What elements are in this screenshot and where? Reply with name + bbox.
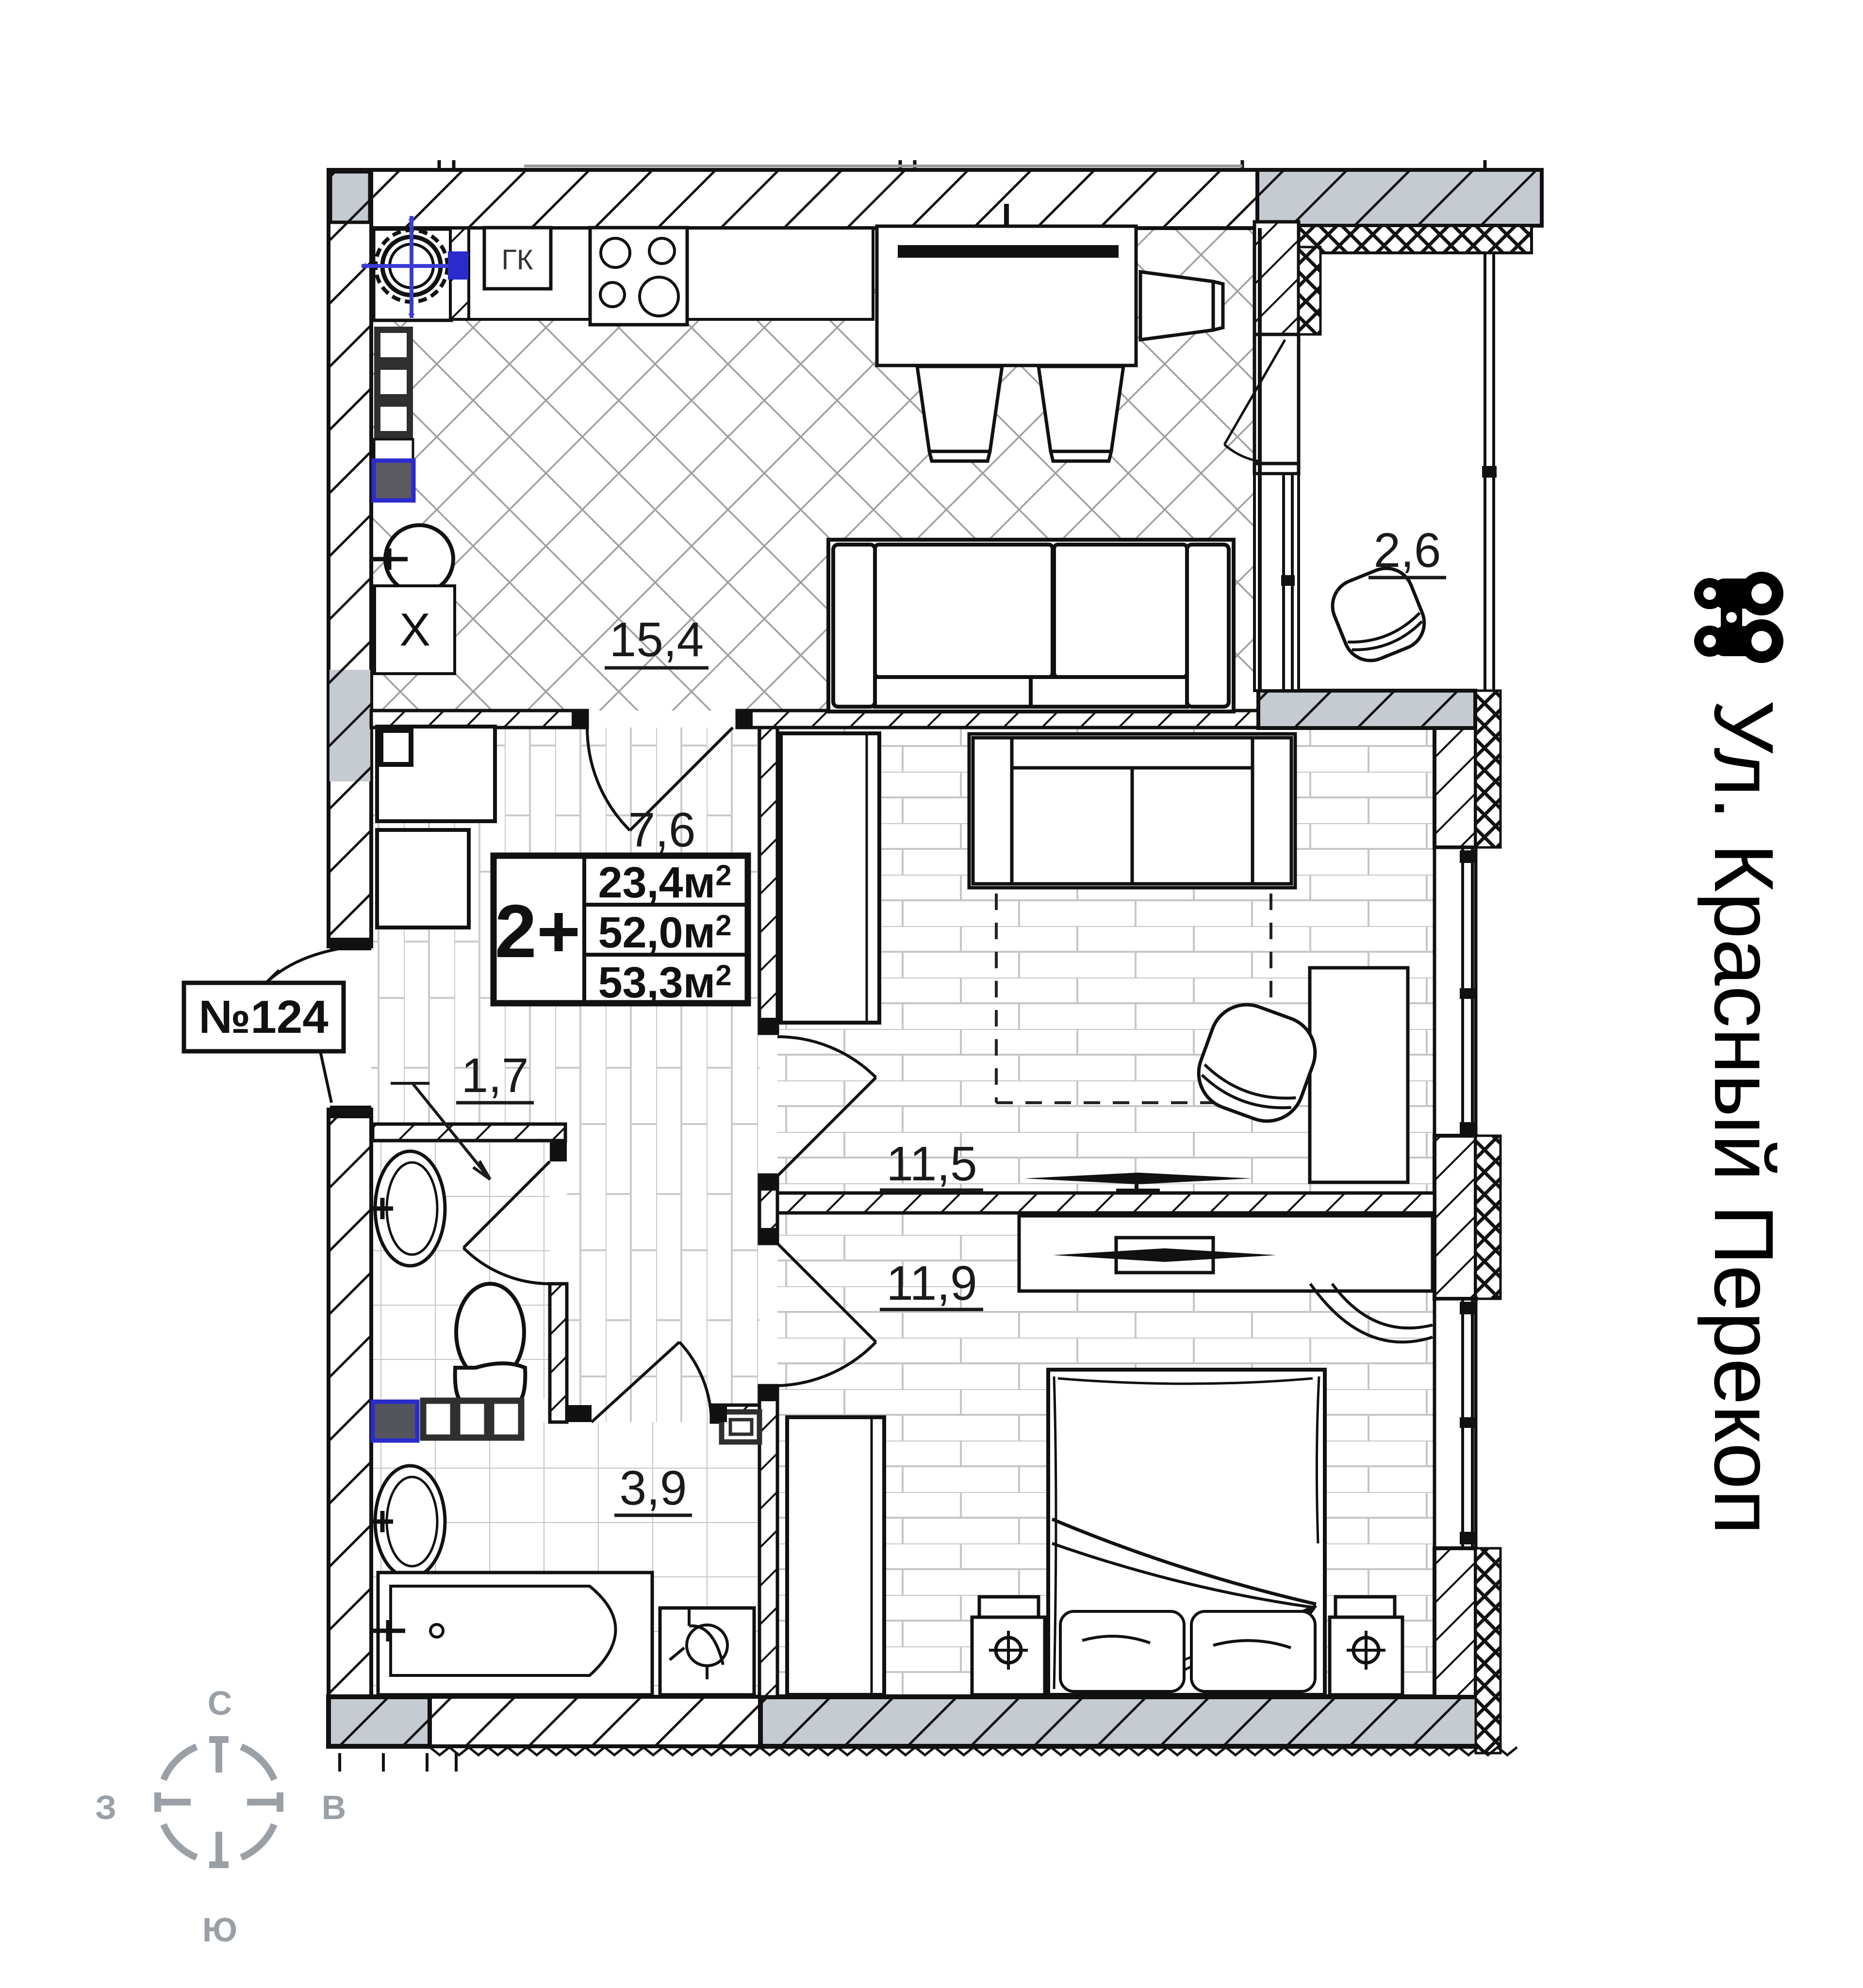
svg-text:2+: 2+ (495, 889, 581, 973)
svg-text:7,6: 7,6 (628, 803, 695, 857)
svg-text:3,9: 3,9 (619, 1461, 687, 1515)
svg-text:ГК: ГК (501, 244, 533, 276)
svg-text:23,4м2: 23,4м2 (598, 859, 731, 907)
svg-text:2,6: 2,6 (1373, 523, 1441, 578)
svg-text:11,5: 11,5 (886, 1137, 977, 1191)
svg-text:З: З (95, 1789, 116, 1826)
svg-text:11,9: 11,9 (886, 1256, 977, 1310)
svg-text:15,4: 15,4 (610, 613, 704, 667)
svg-text:В: В (322, 1789, 346, 1826)
svg-text:52,0м2: 52,0м2 (598, 909, 731, 957)
svg-text:X: X (399, 604, 430, 656)
svg-text:Ю: Ю (202, 1911, 237, 1949)
svg-text:Ул. Красный Перекоп: Ул. Красный Перекоп (1697, 700, 1791, 1535)
svg-text:№124: №124 (198, 991, 328, 1043)
svg-text:1,7: 1,7 (461, 1048, 528, 1103)
svg-text:53,3м2: 53,3м2 (598, 959, 731, 1007)
svg-text:С: С (208, 1684, 232, 1722)
